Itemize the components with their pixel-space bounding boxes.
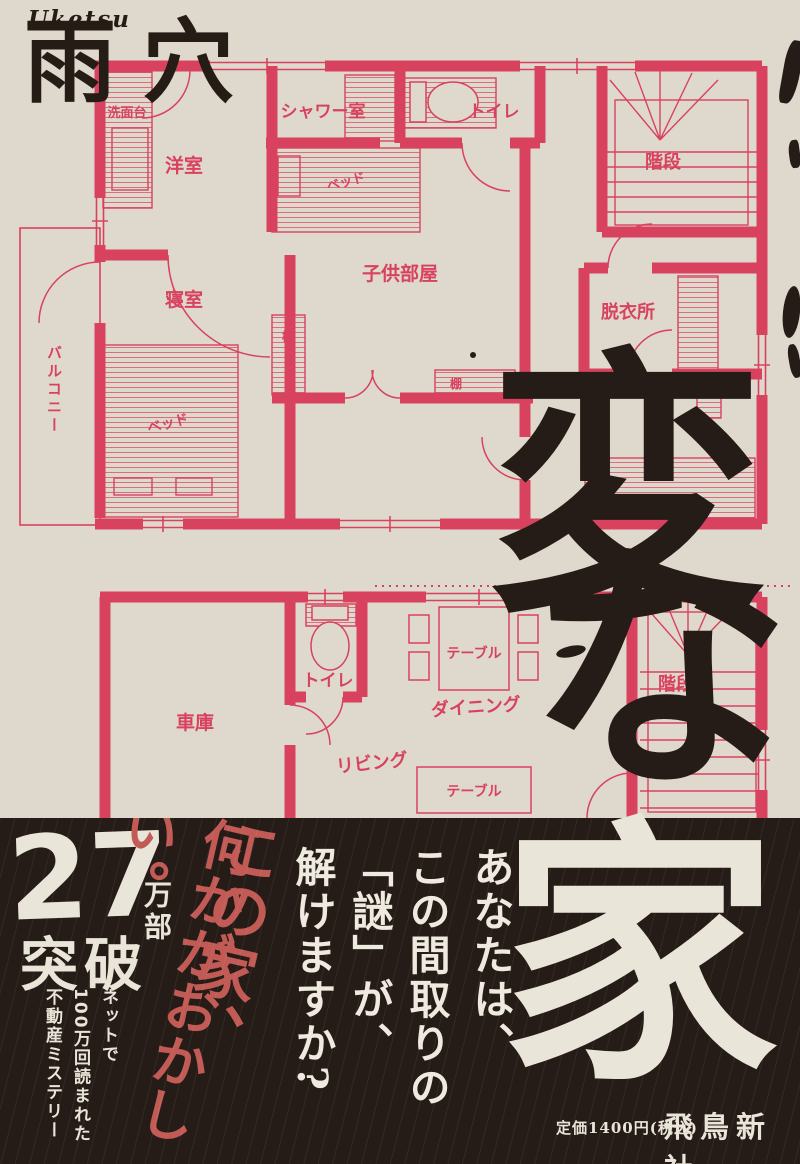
question-line-3: 「謎」が、: [339, 846, 399, 1066]
label-dining: ダイニング: [430, 693, 521, 721]
label-bedroom: 寝室: [165, 288, 203, 311]
label-shelf-2: 棚: [450, 376, 462, 391]
label-shelf-1: 棚: [282, 329, 294, 344]
label-western-room: 洋室: [165, 154, 203, 177]
label-upper-toilet: トイレ: [469, 102, 520, 122]
label-shower-room: シャワー室: [281, 101, 366, 122]
question-line-2: この間取りの: [396, 846, 456, 1110]
title-char-na: な: [528, 542, 790, 799]
book-cover: 洗面台 洋室 シャワー室 トイレ 階段 子供部屋 寝室 脱衣所 棚 棚 ベッド …: [0, 0, 800, 1164]
question-line-4: 解けますか?: [282, 846, 342, 1093]
ink-splatter: [470, 352, 476, 358]
label-kids-room: 子供部屋: [362, 262, 438, 285]
title-char-ie: 家: [500, 820, 778, 1092]
label-living-table: テーブル: [446, 783, 501, 800]
author-name: 雨穴: [24, 16, 260, 108]
label-upper-stairs: 階段: [645, 151, 682, 173]
label-balcony: バルコニー: [44, 345, 65, 435]
label-living: リビング: [335, 748, 409, 777]
label-dressing-room: 脱衣所: [601, 301, 655, 323]
label-lower-toilet: トイレ: [303, 671, 354, 691]
upper-stairs: [604, 70, 760, 225]
label-garage: 車庫: [176, 711, 214, 734]
